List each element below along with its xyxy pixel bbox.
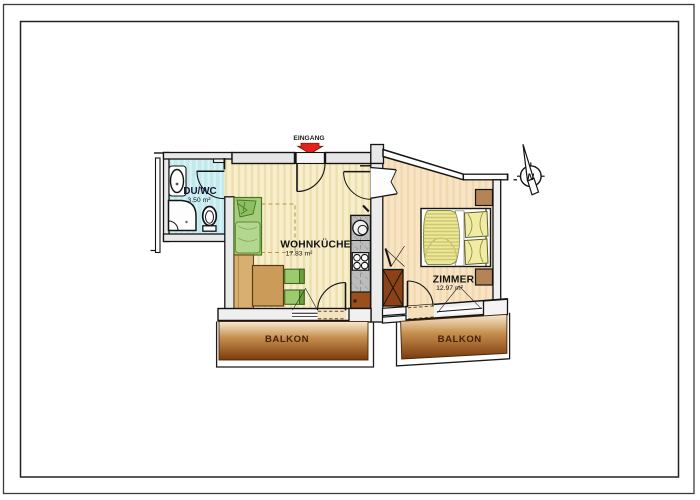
- svg-text:WOHNKÜCHE: WOHNKÜCHE: [280, 238, 350, 251]
- svg-text:EINGANG: EINGANG: [293, 135, 324, 142]
- svg-text:BALKON: BALKON: [265, 334, 309, 345]
- svg-text:3.50 m²: 3.50 m²: [187, 197, 211, 204]
- svg-text:N: N: [527, 172, 535, 183]
- svg-text:BALKON: BALKON: [438, 334, 482, 345]
- svg-text:12.97 m²: 12.97 m²: [436, 285, 464, 292]
- svg-text:DU/WC: DU/WC: [183, 186, 216, 197]
- svg-text:17.83 m²: 17.83 m²: [286, 250, 314, 257]
